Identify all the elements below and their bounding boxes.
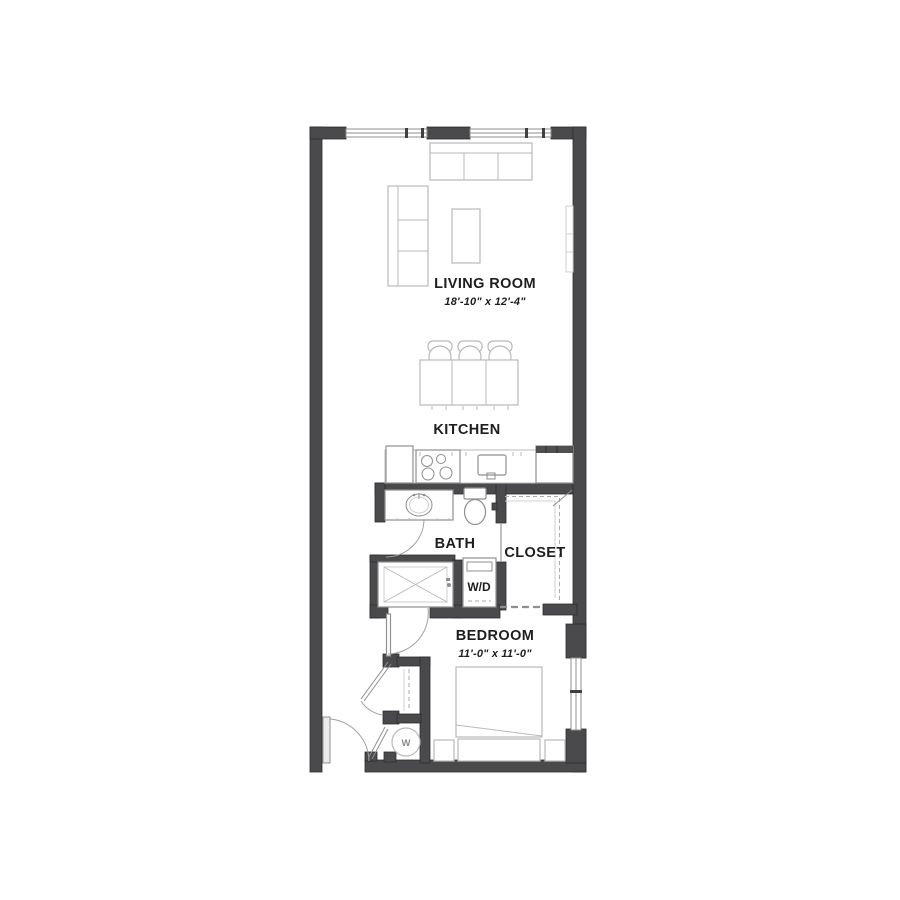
bedroom-door — [387, 608, 429, 656]
coat-closet-door — [361, 662, 391, 715]
window-mullion — [405, 128, 408, 138]
window-mullion — [525, 128, 528, 138]
top-wall-left-segment — [310, 127, 346, 139]
living-room-label: LIVING ROOM — [434, 276, 536, 292]
toilet — [464, 488, 486, 525]
water-heater-label: W — [402, 738, 411, 749]
kitchen-label: KITCHEN — [433, 422, 500, 438]
window-mullion — [421, 128, 424, 138]
coffee-table — [452, 209, 480, 263]
toilet-wall-nib — [492, 503, 497, 510]
bedroom-window — [570, 658, 582, 730]
top-window-left — [346, 128, 427, 138]
toilet-bowl — [465, 500, 486, 525]
floor-plan-page: W LIVING ROOM 18'-10" x 12'-4" KITCHEN B… — [0, 0, 900, 900]
entry-door — [323, 717, 369, 763]
shower — [378, 562, 453, 607]
bed-headboard — [458, 739, 540, 761]
shower-north-wall — [370, 555, 455, 562]
closet-label: CLOSET — [504, 545, 565, 561]
door-leaf-angled — [361, 662, 391, 701]
water-heater-south-stub — [384, 752, 396, 762]
coat-closet-mid-wall — [397, 714, 421, 723]
tall-cabinet — [386, 446, 413, 483]
door-swing-arc — [330, 719, 369, 761]
nightstand-left — [434, 740, 454, 761]
floor-plan: W LIVING ROOM 18'-10" x 12'-4" KITCHEN B… — [0, 0, 900, 900]
table-leg-ticks — [432, 406, 508, 410]
living-room-dims: 18'-10" x 12'-4" — [444, 296, 526, 308]
shower-control — [446, 578, 450, 581]
nightstand-right — [545, 740, 565, 761]
dining-table — [420, 360, 518, 405]
bath-door — [386, 516, 424, 558]
bedroom-window-pier-lower — [566, 729, 586, 763]
door-swing-arc — [386, 519, 424, 557]
window-mullion — [542, 128, 545, 138]
living-room-wall-panel — [566, 206, 573, 272]
sofa-outline — [388, 186, 428, 286]
dining-set — [420, 341, 518, 410]
kitchen-counter — [385, 446, 573, 483]
door-leaf — [323, 717, 330, 763]
faucet-handle — [423, 494, 426, 497]
bedroom-dims: 11'-0" x 11'-0" — [458, 648, 532, 660]
window-mullion — [570, 690, 582, 693]
door-swing-arc — [388, 608, 428, 654]
right-wall-upper — [573, 127, 586, 658]
bedroom-window-pier-upper — [566, 624, 586, 658]
refrigerator — [536, 446, 573, 483]
fridge-top-band — [536, 446, 573, 453]
bedroom-label: BEDROOM — [456, 628, 535, 644]
bedroom-furniture — [434, 667, 565, 761]
top-window-right — [470, 128, 551, 138]
sofa-vertical — [388, 186, 428, 286]
top-wall-center-segment — [427, 127, 470, 139]
vestibule-east-wall — [420, 657, 430, 763]
cooktop — [416, 450, 460, 483]
toilet-tank — [464, 488, 486, 499]
kitchen-sink — [478, 455, 506, 479]
door-leaf — [387, 614, 391, 656]
faucet-handle — [413, 494, 416, 497]
vanity — [385, 490, 453, 521]
bath-label: BATH — [435, 536, 476, 552]
water-heater: W — [392, 728, 420, 756]
cooktop-outline — [416, 450, 460, 483]
door-swing-arc — [361, 701, 382, 715]
sink-basin — [478, 455, 506, 475]
left-wall — [310, 127, 322, 772]
bottom-wall — [365, 760, 586, 772]
sofa-outline — [430, 143, 532, 180]
bath-closet-wall-upper — [496, 483, 506, 523]
wd-label: W/D — [467, 580, 491, 594]
sofa-horizontal — [430, 143, 532, 180]
bath-closet-wall-lower — [496, 562, 506, 610]
wall-panel — [566, 206, 573, 272]
bath-west-wall-stub — [375, 483, 385, 522]
shower-valve — [447, 583, 451, 587]
living-room-furniture — [388, 143, 532, 286]
bedroom-northeast-wall — [543, 604, 577, 615]
